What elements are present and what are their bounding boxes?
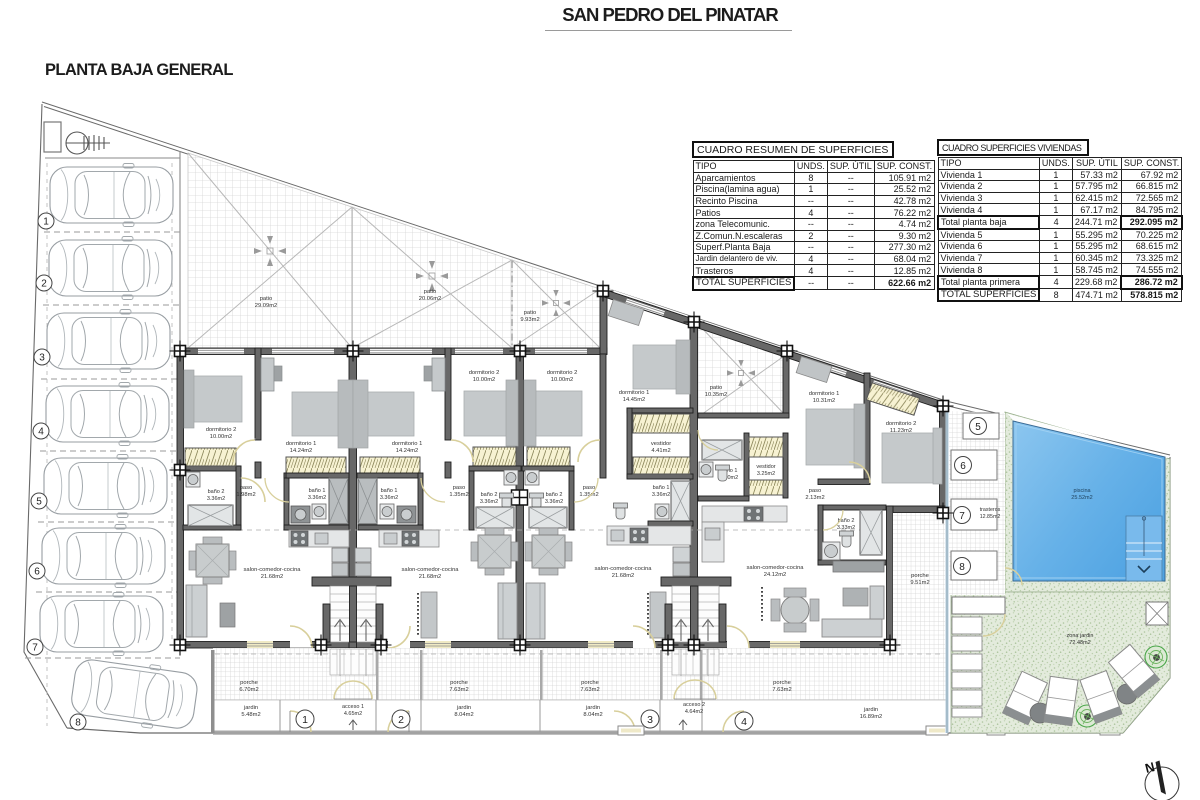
svg-text:acceso 1: acceso 1	[342, 704, 364, 710]
svg-text:jardin: jardin	[863, 707, 878, 713]
svg-text:paso: paso	[240, 485, 253, 491]
svg-text:5: 5	[36, 497, 42, 508]
svg-text:salon-comedor-cocina: salon-comedor-cocina	[243, 567, 301, 573]
svg-text:4.41m2: 4.41m2	[651, 448, 670, 454]
svg-text:patio: patio	[524, 310, 537, 316]
svg-text:6: 6	[34, 567, 40, 578]
svg-text:piscina: piscina	[1073, 488, 1091, 494]
svg-text:1: 1	[302, 714, 308, 726]
svg-text:24.12m2: 24.12m2	[764, 572, 787, 578]
svg-text:6: 6	[960, 461, 966, 472]
svg-text:7.63m2: 7.63m2	[449, 687, 468, 693]
svg-text:dormitorio 2: dormitorio 2	[469, 370, 500, 376]
svg-text:5: 5	[975, 422, 981, 433]
svg-text:2.13m2: 2.13m2	[805, 495, 824, 501]
svg-text:3: 3	[647, 714, 653, 726]
svg-text:14.24m2: 14.24m2	[396, 448, 419, 454]
svg-text:3.36m2: 3.36m2	[545, 499, 563, 505]
svg-text:patio: patio	[260, 296, 273, 302]
svg-text:10.00m2: 10.00m2	[473, 377, 496, 383]
svg-text:baño 2: baño 2	[546, 492, 563, 498]
svg-text:acceso 2: acceso 2	[683, 702, 705, 708]
svg-text:4.64m2: 4.64m2	[685, 709, 703, 715]
svg-text:3.36m2: 3.36m2	[480, 499, 498, 505]
svg-text:3.25m2: 3.25m2	[757, 471, 775, 477]
svg-text:porche: porche	[773, 680, 791, 686]
svg-text:dormitorio 2: dormitorio 2	[206, 427, 237, 433]
svg-text:1.98m2: 1.98m2	[236, 492, 255, 498]
svg-text:7: 7	[32, 643, 38, 654]
svg-text:10.31m2: 10.31m2	[813, 398, 836, 404]
svg-text:8.04m2: 8.04m2	[454, 712, 473, 718]
svg-text:20.06m2: 20.06m2	[419, 296, 442, 302]
svg-text:16.89m2: 16.89m2	[860, 714, 883, 720]
svg-text:paso: paso	[583, 485, 596, 491]
svg-text:baño 1: baño 1	[653, 485, 670, 491]
svg-text:9.51m2: 9.51m2	[910, 580, 929, 586]
svg-text:patio: patio	[424, 289, 437, 295]
svg-text:3.36m2: 3.36m2	[380, 495, 398, 501]
svg-text:salon-comedor-cocina: salon-comedor-cocina	[594, 566, 652, 572]
svg-text:3.36m2: 3.36m2	[652, 492, 670, 498]
svg-text:vestidor: vestidor	[756, 464, 775, 470]
svg-text:21.68m2: 21.68m2	[612, 573, 635, 579]
svg-text:salon-comedor-cocina: salon-comedor-cocina	[746, 565, 804, 571]
svg-text:7.63m2: 7.63m2	[580, 687, 599, 693]
svg-text:paso: paso	[453, 485, 466, 491]
svg-text:baño 2: baño 2	[481, 492, 498, 498]
svg-text:dormitorio 2: dormitorio 2	[886, 421, 917, 427]
svg-text:10.35m2: 10.35m2	[705, 392, 728, 398]
svg-text:10.00m2: 10.00m2	[551, 377, 574, 383]
svg-text:dormitorio 1: dormitorio 1	[286, 441, 317, 447]
svg-text:4: 4	[741, 716, 747, 728]
svg-text:porche: porche	[581, 680, 599, 686]
svg-text:trasteros: trasteros	[980, 507, 1001, 513]
svg-text:10.00m2: 10.00m2	[210, 434, 233, 440]
svg-text:3.36m2: 3.36m2	[207, 496, 225, 502]
svg-text:baño 1: baño 1	[381, 488, 398, 494]
svg-text:11.23m2: 11.23m2	[890, 428, 912, 434]
svg-text:3: 3	[39, 353, 45, 364]
svg-text:porche: porche	[450, 680, 468, 686]
svg-text:baño 1: baño 1	[309, 488, 326, 494]
svg-text:8: 8	[75, 718, 81, 729]
svg-text:21.68m2: 21.68m2	[419, 574, 442, 580]
svg-text:1: 1	[43, 217, 49, 228]
svg-text:2: 2	[41, 279, 47, 290]
svg-text:72.48m2: 72.48m2	[1069, 640, 1090, 646]
svg-text:12.85m2: 12.85m2	[980, 514, 1001, 520]
svg-text:1.35m2: 1.35m2	[449, 492, 468, 498]
svg-text:9.93m2: 9.93m2	[520, 317, 539, 323]
svg-text:porche: porche	[240, 680, 258, 686]
svg-text:patio: patio	[710, 385, 723, 391]
svg-text:14.24m2: 14.24m2	[290, 448, 313, 454]
svg-text:2: 2	[398, 714, 404, 726]
svg-text:6.70m2: 6.70m2	[239, 687, 258, 693]
svg-text:vestidor: vestidor	[651, 441, 671, 447]
svg-text:dormitorio 1: dormitorio 1	[619, 390, 650, 396]
svg-text:jardin: jardin	[456, 705, 471, 711]
svg-text:dormitorio 1: dormitorio 1	[392, 441, 423, 447]
svg-text:paso: paso	[809, 488, 822, 494]
svg-text:8.04m2: 8.04m2	[583, 712, 602, 718]
svg-text:jardin: jardin	[585, 705, 600, 711]
svg-text:5.48m2: 5.48m2	[241, 712, 260, 718]
svg-text:zona jardin: zona jardin	[1067, 633, 1094, 639]
svg-text:7.63m2: 7.63m2	[772, 687, 791, 693]
svg-text:4: 4	[38, 427, 44, 438]
svg-text:4.65m2: 4.65m2	[344, 711, 362, 717]
svg-text:7: 7	[959, 511, 965, 522]
svg-text:porche: porche	[911, 573, 929, 579]
svg-text:dormitorio 1: dormitorio 1	[809, 391, 840, 397]
svg-text:3.33m2: 3.33m2	[837, 525, 855, 531]
svg-text:salon-comedor-cocina: salon-comedor-cocina	[401, 567, 459, 573]
svg-text:jardin: jardin	[243, 705, 258, 711]
svg-text:29.09m2: 29.09m2	[255, 303, 278, 309]
svg-text:8: 8	[959, 562, 965, 573]
svg-text:3.36m2: 3.36m2	[308, 495, 326, 501]
svg-text:baño 2: baño 2	[208, 489, 225, 495]
svg-text:dormitorio 2: dormitorio 2	[547, 370, 578, 376]
svg-text:25.52m2: 25.52m2	[1071, 495, 1092, 501]
svg-text:21.68m2: 21.68m2	[261, 574, 284, 580]
svg-text:14.45m2: 14.45m2	[623, 397, 646, 403]
